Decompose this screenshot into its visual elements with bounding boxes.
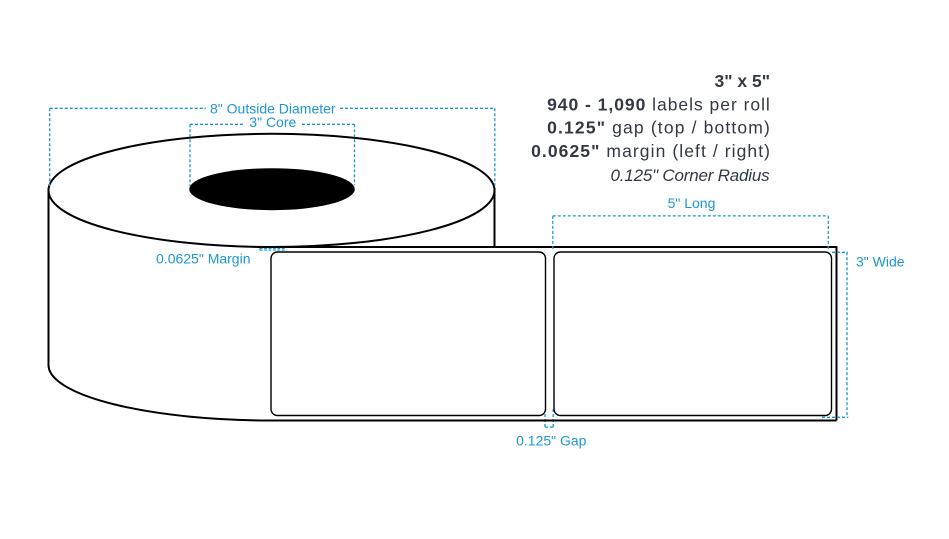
svg-text:0.0625" margin (left / right): 0.0625" margin (left / right) (531, 141, 771, 161)
svg-text:0.125" Gap: 0.125" Gap (516, 433, 587, 449)
svg-text:0.125" gap (top / bottom): 0.125" gap (top / bottom) (547, 118, 771, 138)
svg-text:3" x 5": 3" x 5" (714, 71, 770, 91)
svg-text:3" Core: 3" Core (249, 114, 296, 130)
svg-text:0.0625" Margin: 0.0625" Margin (156, 251, 250, 267)
svg-text:5" Long: 5" Long (668, 195, 716, 211)
svg-text:0.125" Corner Radius: 0.125" Corner Radius (611, 166, 771, 185)
svg-text:940 - 1,090 labels per roll: 940 - 1,090 labels per roll (547, 94, 771, 114)
svg-text:3" Wide: 3" Wide (856, 254, 905, 270)
